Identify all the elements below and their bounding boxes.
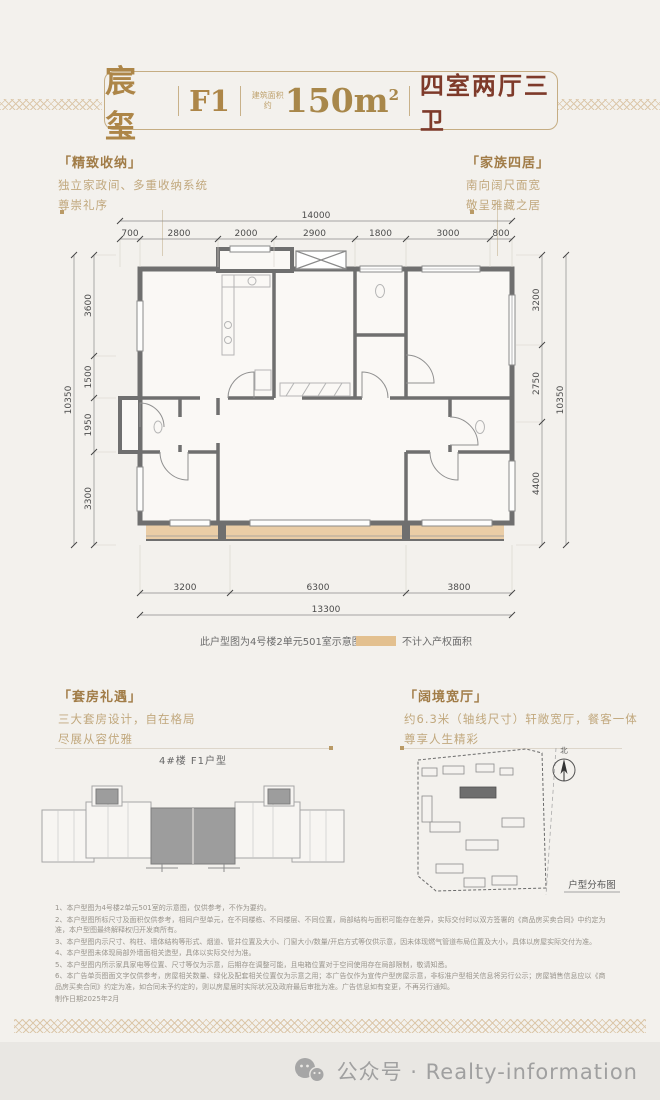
feature-line: 三大套房设计，自在格局 (58, 710, 196, 730)
dim-label: 3300 (84, 487, 94, 510)
exterior-walls (120, 249, 512, 540)
dim-label: 10350 (556, 385, 566, 414)
dim-label: 3200 (174, 583, 197, 593)
disclaimer-item: 5、本户型图内所示家具家电等位置、尺寸等仅为示意，后期存在调整可能，且电箱位置对… (55, 960, 607, 971)
area-label: 建筑面积约 (251, 91, 285, 110)
production-date: 制作日期2025年2月 (55, 994, 607, 1005)
lattice-band-right (558, 99, 660, 110)
svg-text:户型分布图: 户型分布图 (568, 879, 616, 891)
disclaimer-item: 4、本户型图未体现局部外墙面相关造型，具体以实际交付为准。 (55, 948, 607, 959)
shaft-box (296, 251, 346, 269)
dim-label: 2000 (235, 229, 258, 239)
feature-line: 尽展从容优雅 (58, 730, 196, 750)
wechat-icon (292, 1056, 328, 1086)
dim-label: 1950 (84, 413, 94, 436)
floorplan-poster: { "header": { "project_name": "宸玺", "uni… (0, 0, 660, 1100)
lattice-band-bottom (14, 1019, 646, 1033)
layout-text: 四室两厅三卫 (420, 66, 557, 136)
dim-label: 3000 (437, 229, 460, 239)
project-name: 宸玺 (105, 56, 168, 146)
disclaimer-item: 2、本户型图所标尺寸及面积仅供参考，相同户型单元，在不同楼栋、不同楼层、不同位置… (55, 915, 607, 936)
site-buildings (422, 764, 524, 887)
dim-label: 2750 (532, 372, 542, 395)
feature-header: 「精致收纳」 (58, 152, 208, 171)
title-divider (240, 86, 241, 116)
building-keyplan: 4#楼 F1户型 (28, 752, 358, 892)
feature-header: 「家族四居」 (466, 152, 550, 171)
dim-label: 1500 (84, 365, 94, 388)
dim-label: 14000 (302, 211, 331, 221)
disclaimer-block: 1、本户型图为4号楼2单元501室的示意图，仅供参考，不作为要约。 2、本户型图… (55, 903, 607, 1005)
dim-label: 800 (492, 229, 509, 239)
keyplan-title: 4#楼 F1户型 (28, 752, 358, 767)
dim-label: 13300 (312, 605, 341, 615)
disclaimer-item: 1、本户型图为4号楼2单元501室的示意图，仅供参考，不作为要约。 (55, 903, 607, 914)
dim-label: 6300 (307, 583, 330, 593)
feature-header: 「套房礼遇」 (58, 686, 196, 705)
dim-label: 10350 (64, 385, 74, 414)
title-divider (178, 86, 179, 116)
feature-line: 约6.3米（轴线尺寸）轩敞宽厅，餐客一体 (404, 710, 638, 730)
dim-label: 700 (121, 229, 138, 239)
svg-text:北: 北 (560, 746, 568, 755)
dim-label: 1800 (369, 229, 392, 239)
keyplan-drawing (28, 770, 358, 888)
area-value: 150m2 (285, 84, 399, 117)
feature-line: 南向阔尺面宽 (466, 176, 550, 196)
dim-label: 4400 (532, 472, 542, 495)
dim-label: 2800 (168, 229, 191, 239)
title-plaque: 宸玺 F1 建筑面积约 150m2 四室两厅三卫 (104, 71, 558, 130)
dim-label: 3800 (448, 583, 471, 593)
plan-caption-row: 此户型图为4号楼2单元501室示意图 不计入产权面积 (200, 635, 472, 648)
dim-label: 2900 (303, 229, 326, 239)
feature-suites: 「套房礼遇」 三大套房设计，自在格局 尽展从容优雅 (58, 686, 196, 749)
area-group: 建筑面积约 150m2 (251, 84, 399, 117)
divider-rule-left (55, 748, 329, 749)
dim-label: 3600 (84, 294, 94, 317)
footer-bar: 公众号 · Realty-information (0, 1042, 660, 1100)
siteplan-caption: 户型分布图 (564, 879, 620, 892)
unit-type: F1 (189, 84, 230, 118)
highlighted-building-4 (460, 787, 496, 798)
title-divider (409, 86, 410, 116)
feature-line: 独立家政间、多重收纳系统 (58, 176, 208, 196)
disclaimer-item: 3、本户型图内示尺寸、构柱、墙体结构等形式、烟道、管井位置及大小、门窗大小/数量… (55, 937, 607, 948)
lattice-band-left (0, 99, 102, 110)
disclaimer-item: 6、本广告单页图面文字仅供参考，房屋相关数量、绿化及配套相关位置仅为示意之用；本… (55, 971, 607, 992)
feature-header: 「阔境宽厅」 (404, 686, 638, 705)
legend-swatch (356, 636, 396, 646)
legend-label: 不计入产权面积 (402, 635, 472, 648)
plan-caption: 此户型图为4号楼2单元501室示意图 (200, 635, 362, 648)
dim-label: 3200 (532, 288, 542, 311)
road-line (546, 748, 556, 895)
north-compass: 北 (553, 746, 575, 781)
footer-account: 公众号 · Realty-information (337, 1056, 638, 1086)
marker-dot (329, 746, 333, 750)
floorplan-drawing: 此户型图为4号楼2单元501室示意图 不计入产权面积 7002800200029… (50, 205, 610, 655)
siteplan-drawing: 北 户型分布图 (396, 740, 632, 908)
